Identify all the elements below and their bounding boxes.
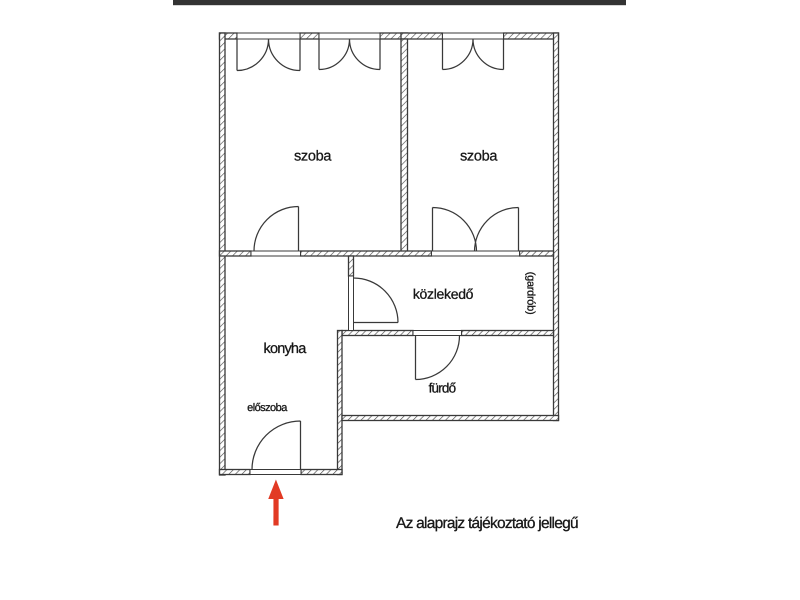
svg-text:szoba: szoba xyxy=(294,148,332,164)
svg-text:Az alaprajz tájékoztató jelleg: Az alaprajz tájékoztató jellegű xyxy=(396,515,578,532)
svg-text:közlekedő: közlekedő xyxy=(413,286,474,302)
svg-text:szoba: szoba xyxy=(460,149,498,165)
svg-text:fürdő: fürdő xyxy=(429,381,456,396)
svg-text:konyha: konyha xyxy=(263,341,307,357)
svg-text:(gardrób): (gardrób) xyxy=(524,272,536,315)
svg-text:előszoba: előszoba xyxy=(247,402,288,414)
